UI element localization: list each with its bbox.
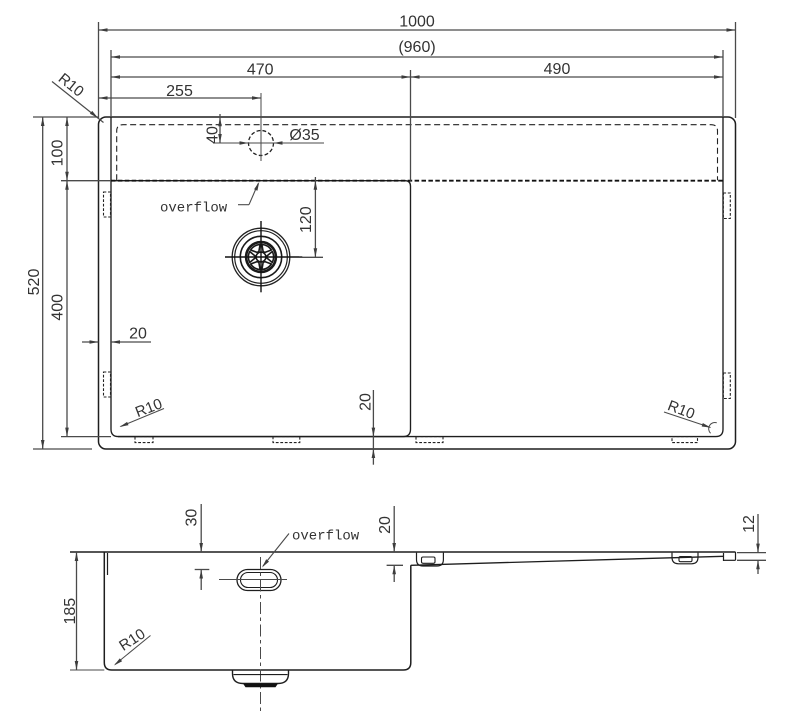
svg-text:20: 20 xyxy=(358,393,375,411)
svg-text:overflow: overflow xyxy=(160,201,228,217)
svg-text:185: 185 xyxy=(62,598,79,625)
svg-text:1000: 1000 xyxy=(399,13,435,30)
svg-text:20: 20 xyxy=(377,516,394,534)
svg-text:470: 470 xyxy=(247,61,274,78)
svg-text:120: 120 xyxy=(298,206,315,233)
svg-text:40: 40 xyxy=(204,126,221,144)
svg-text:30: 30 xyxy=(184,509,201,527)
svg-text:Ø35: Ø35 xyxy=(289,127,319,144)
svg-text:100: 100 xyxy=(49,140,66,167)
svg-text:400: 400 xyxy=(49,294,66,321)
svg-text:520: 520 xyxy=(26,269,43,296)
svg-text:20: 20 xyxy=(129,325,147,342)
svg-text:12: 12 xyxy=(741,515,758,533)
svg-text:255: 255 xyxy=(166,83,193,100)
svg-text:490: 490 xyxy=(544,61,571,78)
svg-text:overflow: overflow xyxy=(292,529,360,545)
svg-text:(960): (960) xyxy=(398,39,435,56)
